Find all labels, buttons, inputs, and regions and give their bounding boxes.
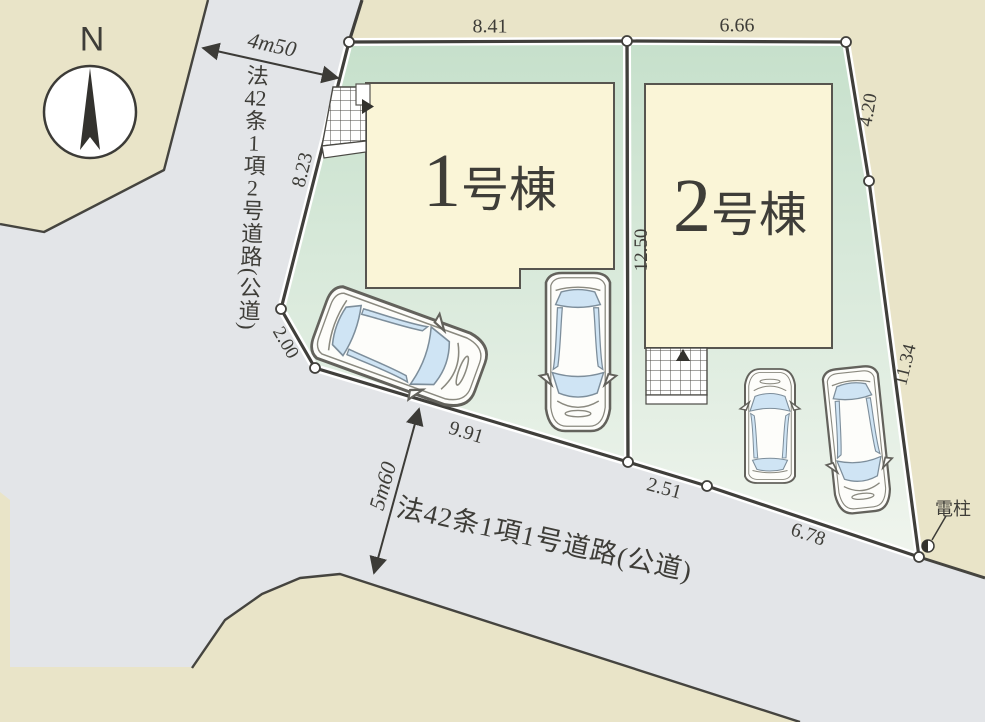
building-2-suffix: 号棟	[711, 192, 807, 240]
dim-lot1-top: 8.41	[473, 16, 508, 39]
building-2-label: 2号棟	[673, 168, 807, 244]
building-2-number: 2	[673, 168, 711, 244]
building-1-suffix: 号棟	[461, 167, 557, 215]
compass-icon	[44, 66, 136, 158]
building-1-number: 1	[423, 143, 461, 219]
car-lot2-left	[740, 369, 800, 483]
dim-lot-divider: 12.50	[631, 229, 653, 272]
site-plan: N 8.41 6.66 8.23 12.50 4.20 11.34 2.00 9…	[0, 0, 985, 722]
site-plan-drawing	[0, 0, 985, 722]
building-2-entrance-steps	[646, 348, 707, 395]
building-1-label: 1号棟	[423, 143, 557, 219]
building-2-entrance-porch	[646, 395, 707, 404]
car-lot1-right	[540, 273, 617, 431]
utility-pole-icon	[922, 540, 934, 552]
utility-pole-label: 電柱	[935, 495, 971, 521]
compass-north-label: N	[80, 21, 105, 60]
dim-lot2-top: 6.66	[720, 15, 755, 38]
